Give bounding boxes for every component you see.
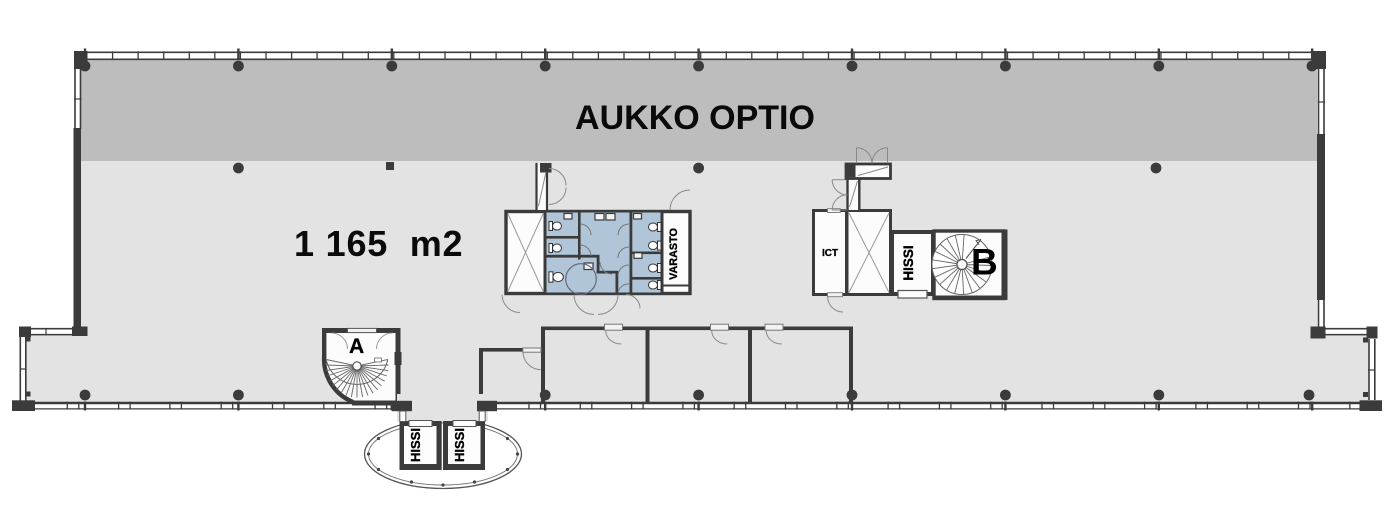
svg-text:VARASTO: VARASTO [668, 228, 680, 280]
svg-text:AUKKO OPTIO: AUKKO OPTIO [575, 99, 815, 137]
svg-text:HISSI: HISSI [408, 428, 423, 462]
svg-text:A: A [349, 335, 364, 358]
svg-text:1 165 m2: 1 165 m2 [294, 223, 463, 264]
svg-text:HISSI: HISSI [901, 245, 916, 280]
svg-text:ICT: ICT [822, 248, 838, 259]
svg-text:B: B [971, 242, 998, 283]
svg-text:HISSI: HISSI [452, 428, 467, 462]
